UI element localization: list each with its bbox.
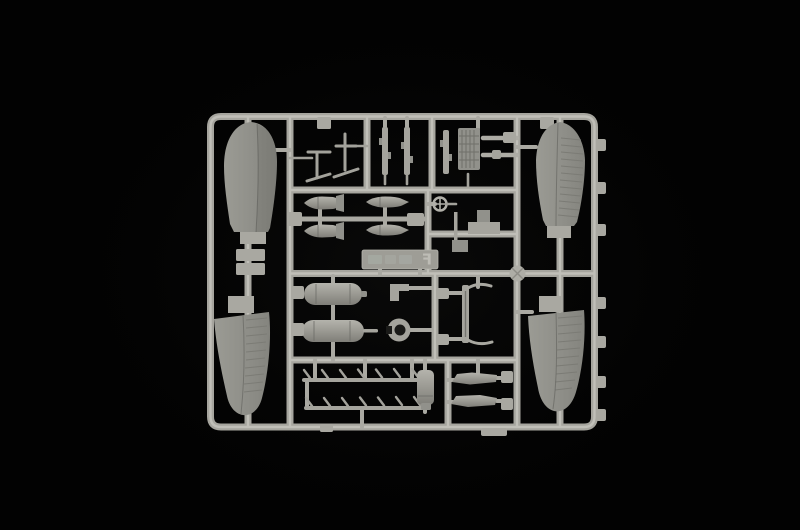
wing-gate-tab (539, 296, 561, 312)
sprue-letter: F (422, 251, 432, 269)
sprue-illustration: F (0, 0, 800, 530)
embossed-text-blur (385, 255, 396, 264)
wing-panel-top-left (224, 122, 277, 244)
embossed-text-blur (399, 255, 412, 264)
cylinder-tank (417, 370, 434, 410)
drop-tank-1 (304, 283, 367, 305)
sprue-photo: F (0, 0, 800, 530)
blade-part-2 (451, 395, 497, 407)
wing-gate-tab (228, 296, 254, 313)
sprue-tag: F (362, 250, 438, 269)
embossed-text-blur (368, 255, 382, 264)
